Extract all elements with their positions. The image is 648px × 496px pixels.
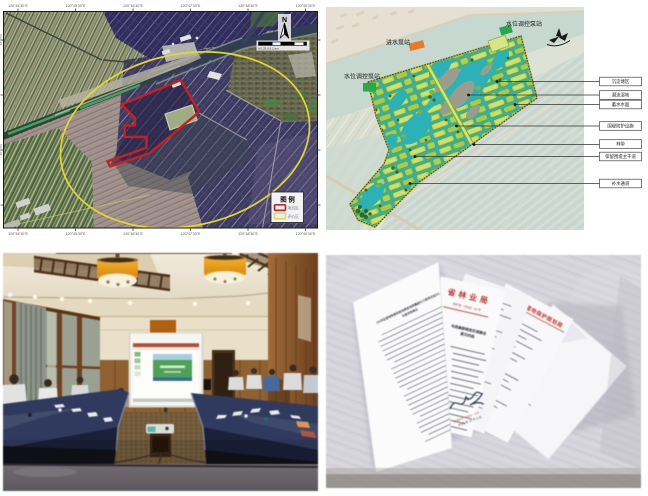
svg-text:120°46'30"E: 120°46'30"E [123, 232, 143, 236]
svg-text:120°44'30"E: 120°44'30"E [8, 232, 28, 236]
svg-text:120°48'30"E: 120°48'30"E [238, 232, 258, 236]
svg-text:120°49'30"E: 120°49'30"E [296, 232, 316, 236]
svg-text:120°44'30"E: 120°44'30"E [8, 4, 28, 8]
svg-text:120°47'30"E: 120°47'30"E [181, 232, 201, 236]
svg-text:33°13'N: 33°13'N [0, 144, 3, 156]
svg-text:水位调控泵站: 水位调控泵站 [506, 20, 542, 28]
svg-text:120°49'30"E: 120°49'30"E [296, 4, 316, 8]
svg-text:120°45'30"E: 120°45'30"E [66, 4, 86, 8]
svg-text:保留围堤主干道: 保留围堤主干道 [605, 153, 636, 160]
svg-text:林带: 林带 [616, 141, 625, 148]
svg-text:120°45'30"E: 120°45'30"E [66, 232, 86, 236]
svg-text:120°48'30"E: 120°48'30"E [238, 4, 258, 8]
svg-text:补水通道: 补水通道 [612, 180, 630, 187]
svg-text:进水泵站: 进水泵站 [386, 39, 410, 47]
svg-text:沉淀塘区: 沉淀塘区 [612, 78, 630, 85]
svg-text:蓄水水面: 蓄水水面 [612, 101, 630, 108]
svg-text:水位调控泵站: 水位调控泵站 [344, 73, 380, 81]
svg-text:围堤防护设施: 围堤防护设施 [607, 123, 634, 130]
svg-text:120°46'30"E: 120°46'30"E [123, 4, 143, 8]
svg-text:潜流湿地: 潜流湿地 [612, 92, 630, 99]
svg-text:33°15'N: 33°15'N [0, 34, 3, 46]
svg-text:120°47'30"E: 120°47'30"E [181, 4, 201, 8]
